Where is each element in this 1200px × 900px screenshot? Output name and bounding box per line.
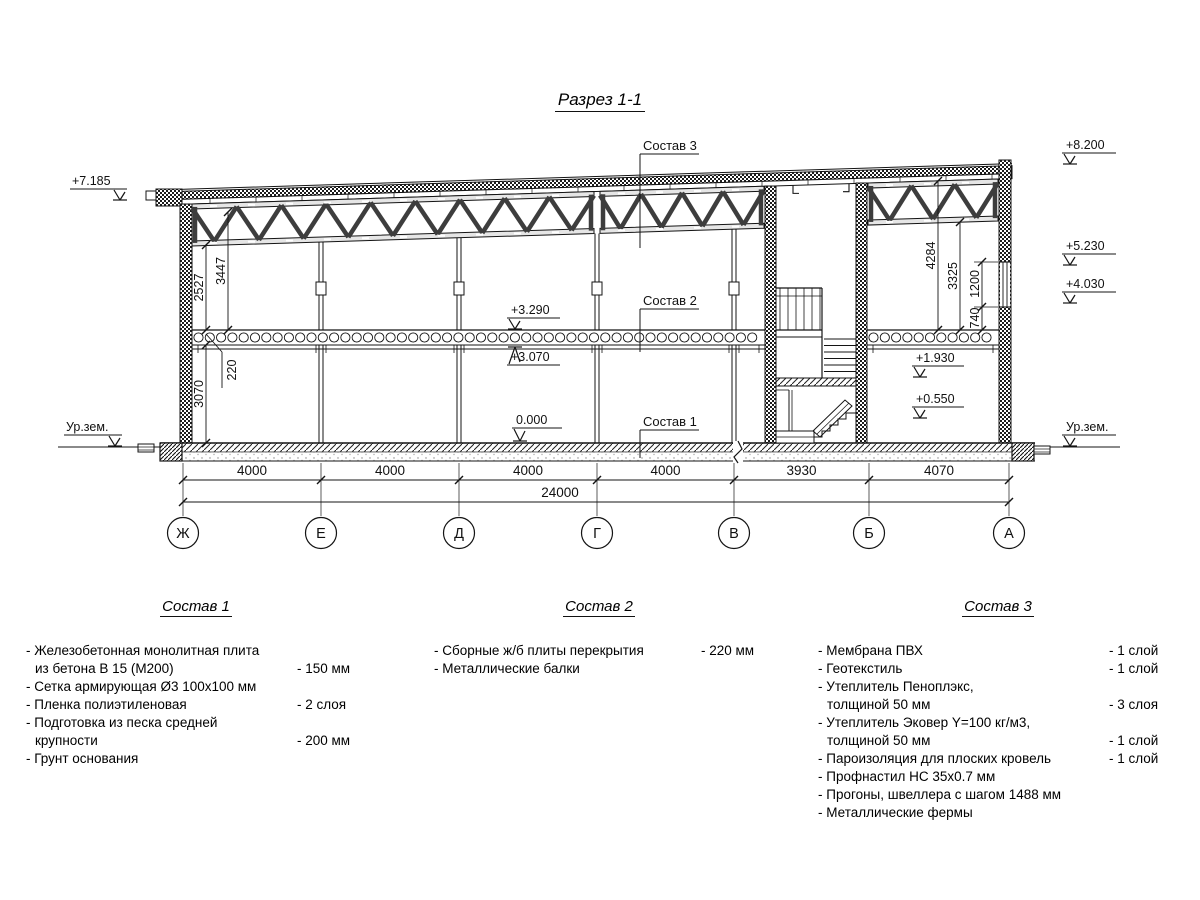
material-label: - Сетка армирующая Ø3 100x100 мм bbox=[26, 678, 297, 696]
span-dim-3: 4000 bbox=[650, 463, 680, 478]
axis-bubble-1: Е bbox=[316, 526, 326, 542]
vdim-v220: 220 bbox=[225, 360, 239, 381]
composition-list-3: Состав 3 - Мембрана ПВХ- 1 слой- Геотекс… bbox=[818, 598, 1178, 822]
material-row: - Металлические фермы bbox=[818, 804, 1178, 822]
material-value: - 150 мм bbox=[297, 660, 350, 678]
material-label: - Металлические фермы bbox=[818, 804, 1109, 822]
material-label: - Прогоны, швеллера с шагом 1488 мм bbox=[818, 786, 1109, 804]
material-row: - Геотекстиль- 1 слой bbox=[818, 660, 1178, 678]
axis-bubble-6: А bbox=[1004, 526, 1014, 542]
level-label-ur_r: Ур.зем. bbox=[1066, 420, 1108, 434]
vdim-v3070: 3070 bbox=[192, 380, 206, 408]
composition-3-title: Состав 3 bbox=[818, 598, 1178, 616]
composition-1-title: Состав 1 bbox=[26, 598, 366, 616]
vdim-v1200: 1200 bbox=[968, 270, 982, 298]
vdim-v2527: 2527 bbox=[192, 274, 206, 302]
axis-bubble-2: Д bbox=[454, 526, 464, 542]
span-dim-2: 4000 bbox=[513, 463, 543, 478]
axis-bubble-5: Б bbox=[864, 526, 874, 542]
material-row: - Пленка полиэтиленовая- 2 слоя bbox=[26, 696, 366, 714]
material-label: - Утеплитель Пеноплэкс, толщиной 50 мм bbox=[818, 678, 1109, 714]
span-dim-5: 4070 bbox=[924, 463, 954, 478]
vdim-v4284: 4284 bbox=[924, 242, 938, 270]
material-row: - Пароизоляция для плоских кровель- 1 сл… bbox=[818, 750, 1178, 768]
composition-2-items: - Сборные ж/б плиты перекрытия- 220 мм- … bbox=[434, 642, 764, 678]
composition-2-title: Состав 2 bbox=[434, 598, 764, 616]
material-row: - Подготовка из песка средней крупности-… bbox=[26, 714, 366, 750]
level-label-e3290: +3.290 bbox=[511, 303, 550, 317]
material-row: - Сборные ж/б плиты перекрытия- 220 мм bbox=[434, 642, 764, 660]
material-row: - Профнастил НС 35x0.7 мм bbox=[818, 768, 1178, 786]
span-dim-1: 4000 bbox=[375, 463, 405, 478]
material-row: - Железобетонная монолитная плита из бет… bbox=[26, 642, 366, 678]
level-label-e4030: +4.030 bbox=[1066, 277, 1105, 291]
level-label-e3070: +3.070 bbox=[511, 350, 550, 364]
material-value: - 1 слой bbox=[1109, 732, 1158, 750]
material-label: - Грунт основания bbox=[26, 750, 297, 768]
vdim-v3325: 3325 bbox=[946, 262, 960, 290]
material-value: - 1 слой bbox=[1109, 660, 1158, 678]
span-dim-0: 4000 bbox=[237, 463, 267, 478]
material-value: - 1 слой bbox=[1109, 642, 1158, 660]
axis-bubble-4: В bbox=[729, 526, 739, 542]
material-label: - Профнастил НС 35x0.7 мм bbox=[818, 768, 1109, 786]
material-label: - Мембрана ПВХ bbox=[818, 642, 1109, 660]
level-label-e0: 0.000 bbox=[516, 413, 547, 427]
vdim-v740: 740 bbox=[968, 308, 982, 329]
composition-1-items: - Железобетонная монолитная плита из бет… bbox=[26, 642, 366, 768]
callout-label-c2: Состав 2 bbox=[643, 293, 697, 308]
level-label-e1930: +1.930 bbox=[916, 351, 955, 365]
axis-bubble-3: Г bbox=[593, 526, 601, 542]
material-value: - 220 мм bbox=[701, 642, 754, 660]
material-label: - Подготовка из песка средней крупности bbox=[26, 714, 297, 750]
level-label-e7185: +7.185 bbox=[72, 174, 111, 188]
material-value: - 1 слой bbox=[1109, 750, 1158, 768]
level-label-e0550: +0.550 bbox=[916, 392, 955, 406]
material-value: - 3 слоя bbox=[1109, 696, 1158, 714]
material-row: - Утеплитель Пеноплэкс, толщиной 50 мм- … bbox=[818, 678, 1178, 714]
composition-list-2: Состав 2 - Сборные ж/б плиты перекрытия-… bbox=[434, 598, 764, 678]
axis-bubble-0: Ж bbox=[176, 526, 190, 542]
material-row: - Металлические балки bbox=[434, 660, 764, 678]
composition-3-items: - Мембрана ПВХ- 1 слой- Геотекстиль- 1 с… bbox=[818, 642, 1178, 822]
level-label-ur_l: Ур.зем. bbox=[66, 420, 108, 434]
material-label: - Пароизоляция для плоских кровель bbox=[818, 750, 1109, 768]
composition-list-1: Состав 1 - Железобетонная монолитная пли… bbox=[26, 598, 366, 768]
material-value: - 200 мм bbox=[297, 732, 350, 750]
material-row: - Грунт основания bbox=[26, 750, 366, 768]
material-row: - Утеплитель Эковер Y=100 кг/м3, толщино… bbox=[818, 714, 1178, 750]
level-label-e5230: +5.230 bbox=[1066, 239, 1105, 253]
callout-label-c3: Состав 3 bbox=[643, 138, 697, 153]
material-label: - Металлические балки bbox=[434, 660, 701, 678]
material-label: - Утеплитель Эковер Y=100 кг/м3, толщино… bbox=[818, 714, 1109, 750]
material-label: - Пленка полиэтиленовая bbox=[26, 696, 297, 714]
material-label: - Сборные ж/б плиты перекрытия bbox=[434, 642, 701, 660]
material-label: - Железобетонная монолитная плита из бет… bbox=[26, 642, 297, 678]
material-row: - Мембрана ПВХ- 1 слой bbox=[818, 642, 1178, 660]
material-row: - Прогоны, швеллера с шагом 1488 мм bbox=[818, 786, 1178, 804]
vdim-v3447: 3447 bbox=[214, 257, 228, 285]
material-row: - Сетка армирующая Ø3 100x100 мм bbox=[26, 678, 366, 696]
material-value: - 2 слоя bbox=[297, 696, 346, 714]
material-label: - Геотекстиль bbox=[818, 660, 1109, 678]
drawing-sheet: Разрез 1-1 +7.185+8.200+5.230+4.0 bbox=[0, 0, 1200, 900]
total-dim: 24000 bbox=[541, 485, 579, 500]
span-dim-4: 3930 bbox=[786, 463, 816, 478]
level-label-e8200: +8.200 bbox=[1066, 138, 1105, 152]
callout-label-c1: Состав 1 bbox=[643, 414, 697, 429]
